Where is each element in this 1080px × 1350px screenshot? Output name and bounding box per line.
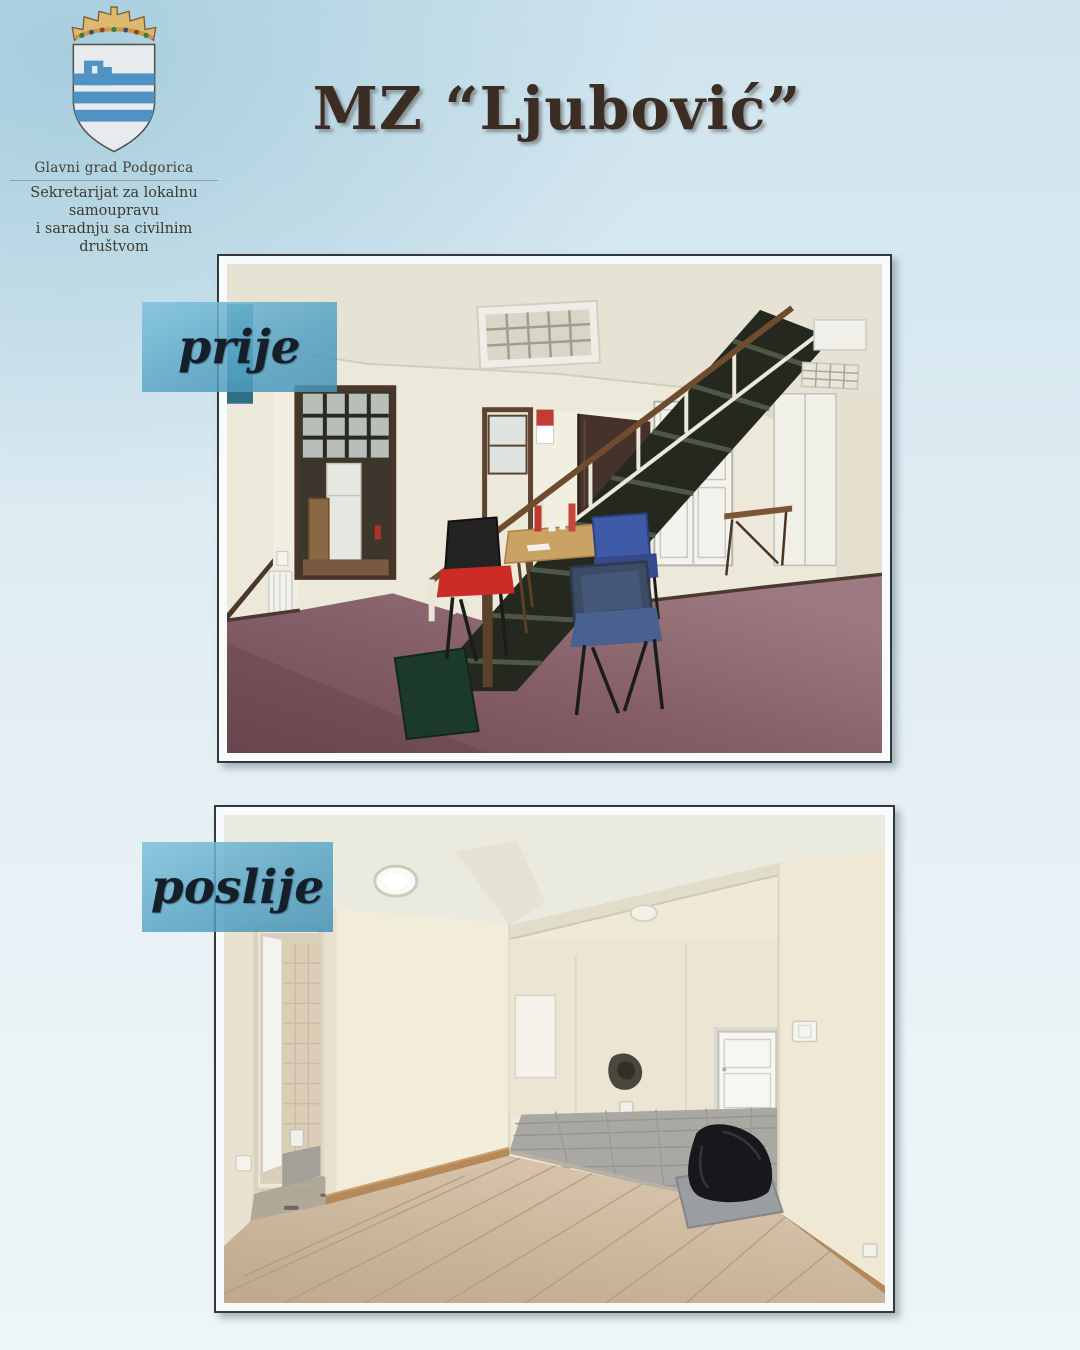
- label-after: poslije: [142, 842, 333, 932]
- after-bathroom-tiles: [282, 943, 320, 1153]
- poster-page: Glavni grad Podgorica Sekretarijat za lo…: [0, 0, 1080, 1350]
- after-ceiling-light-2: [631, 905, 657, 921]
- after-light-switch: [793, 1021, 817, 1041]
- after-central-wall: [325, 908, 509, 1205]
- before-ceiling-vent: [801, 362, 858, 389]
- logo-org-name: Glavni grad Podgorica: [0, 160, 228, 176]
- logo-dept-line2: i saradnju sa civilnim društvom: [0, 220, 228, 256]
- page-title: MZ “Ljubović”: [0, 74, 1080, 143]
- after-socket: [863, 1244, 877, 1257]
- before-fluorescent-light: [477, 301, 600, 369]
- after-paint-bucket: [290, 1130, 303, 1147]
- before-ac-box: [814, 320, 866, 350]
- before-stair-base: [395, 648, 479, 739]
- after-pvc-door: [718, 1031, 776, 1113]
- logo-dept-line1: Sekretarijat za lokalnu samoupravu: [0, 184, 228, 220]
- after-left-wall: [224, 923, 252, 1244]
- label-before: prije: [142, 302, 337, 392]
- logo-divider: [10, 180, 218, 181]
- before-wall-poster: [537, 410, 554, 426]
- after-bathroom-door: [262, 935, 282, 1173]
